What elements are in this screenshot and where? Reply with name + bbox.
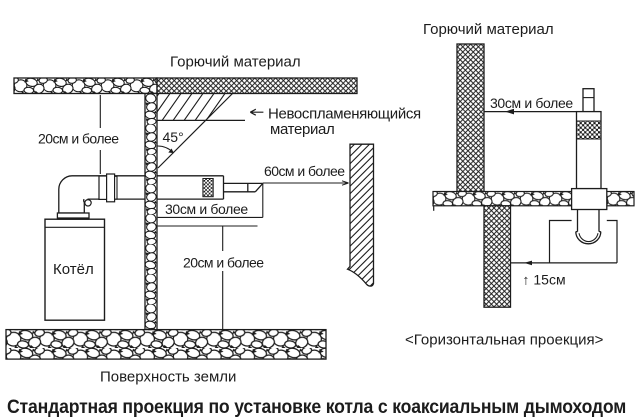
svg-text:Невоспламеняющийся: Невоспламеняющийся (268, 106, 421, 123)
svg-text:Поверхность земли: Поверхность земли (100, 369, 236, 386)
svg-text:60см и более: 60см и более (264, 163, 345, 179)
svg-text:материал: материал (270, 121, 334, 138)
svg-text:20см и более: 20см и более (38, 131, 119, 147)
svg-text:Горючий материал: Горючий материал (423, 21, 554, 38)
svg-text:30см и более: 30см и более (490, 95, 573, 111)
svg-text:Горючий материал: Горючий материал (170, 54, 301, 71)
svg-text:Котёл: Котёл (53, 261, 94, 278)
svg-text:45°: 45° (163, 129, 184, 145)
svg-text:20см и более: 20см и более (183, 255, 264, 271)
svg-text:<Горизонтальная проекция>: <Горизонтальная проекция> (405, 332, 604, 349)
svg-text:30см и более: 30см и более (165, 201, 248, 217)
svg-text:↑ 15см: ↑ 15см (523, 272, 566, 288)
svg-text:Стандартная проекция по устано: Стандартная проекция по установке котла … (7, 395, 626, 417)
